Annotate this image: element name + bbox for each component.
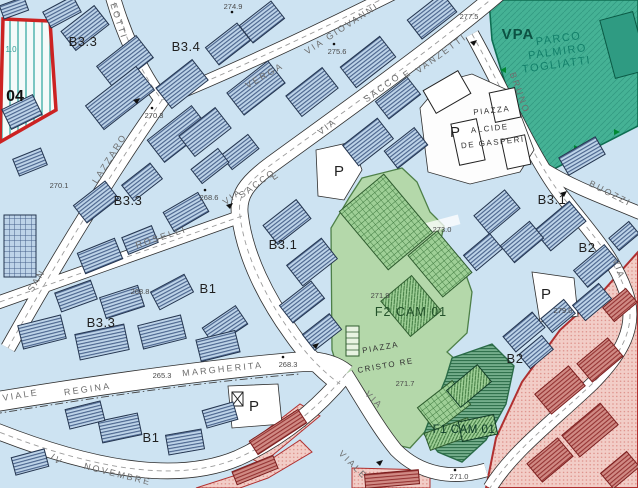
zone-label: B3.3 xyxy=(114,193,143,208)
zone-label: B1 xyxy=(200,281,217,296)
elevation-marker: 270.1 xyxy=(50,181,69,190)
parking-marker: P xyxy=(249,398,259,415)
elevation-marker: 268.8 xyxy=(131,287,150,296)
elevation-marker: 275.6 xyxy=(328,47,347,56)
building-grid xyxy=(4,215,36,277)
elevation-marker: 270.3 xyxy=(145,111,164,120)
parking-marker: P xyxy=(450,124,460,141)
elevation-marker: 271.7 xyxy=(396,379,415,388)
parking-marker: P xyxy=(334,163,344,180)
area-label-vpa: VPA xyxy=(502,26,535,43)
elevation-marker: 273.0 xyxy=(433,225,452,234)
zone-label-04: 04 xyxy=(6,88,24,105)
zone-label: B3.3 xyxy=(87,315,116,330)
zone-label: B3.3 xyxy=(69,34,98,49)
elevation-marker: 268.6 xyxy=(200,193,219,202)
elevation-marker: 265.3 xyxy=(153,371,172,380)
zoning-map-viewport: B3.3 B3.4 B3.3 B3.3 B3.1 B1 B1 B3.1 B2 B… xyxy=(0,0,638,488)
elevation-marker: 279.0 xyxy=(554,306,573,315)
zone-label: B2 xyxy=(507,351,524,366)
parking-marker: P xyxy=(541,286,551,303)
zone-label: B3.4 xyxy=(172,39,201,54)
elevation-marker: 268.3 xyxy=(279,360,298,369)
zone-label: B3.1 xyxy=(269,237,298,252)
map-canvas[interactable]: B3.3 B3.4 B3.3 B3.3 B3.1 B1 B1 B3.1 B2 B… xyxy=(0,0,638,488)
zone-label: B1 xyxy=(143,430,160,445)
zone-label: B2 xyxy=(579,240,596,255)
elevation-marker: 271.0 xyxy=(450,472,469,481)
stair-symbol xyxy=(346,326,359,356)
elevation-marker: 277.5 xyxy=(460,12,479,21)
zone-label: B3.1 xyxy=(538,192,567,207)
elevation-marker: 274.9 xyxy=(224,2,243,11)
zone-index-label: 1.0 xyxy=(5,45,17,54)
area-label-f1-cam: F1 CAM 01 xyxy=(433,424,496,436)
elevation-marker: 271.9 xyxy=(371,291,390,300)
area-label-f2-cam: F2 CAM 01 xyxy=(375,305,447,319)
